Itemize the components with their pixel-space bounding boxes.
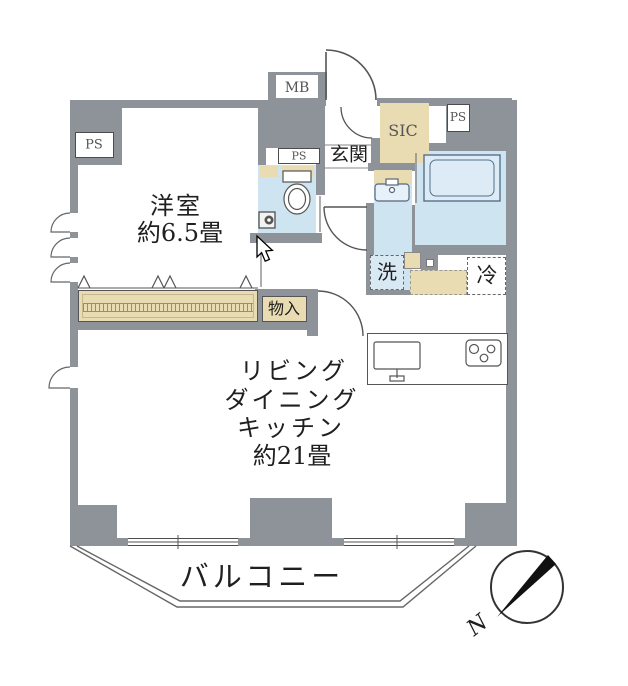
ldk-door-arc [318,291,363,336]
corridor-door [324,207,367,250]
window-notch-4 [70,367,78,388]
corner-cabinet [404,252,421,269]
ps-right-label: PS [450,111,466,123]
pillar-bottom-left [70,505,117,546]
toilet-shelf-right [282,166,314,177]
wall-closet-bottom [70,322,318,330]
wall-sic-left [371,138,380,163]
wall-stub-3 [238,538,250,546]
closet [78,290,258,322]
compass-icon [491,551,563,623]
ldk-label-3: キッチン [237,416,345,440]
ldk-label-1: リビング [240,359,348,383]
western-room-size: 約6.5畳 [137,221,223,245]
fridge-label: 冷 [477,266,498,287]
wall-right [506,100,517,546]
ldk-label-2: ダイニング [225,388,360,412]
window-band-right [344,538,454,546]
wall-top-left [70,100,268,108]
pillar-bottom-center [250,498,332,546]
toilet-shelf-left [260,166,278,177]
entrance-door-opening [326,98,377,106]
bathroom [415,151,506,245]
wall-stub-1 [117,538,128,546]
washer-label: 洗 [377,262,397,282]
wall-bath-bottom [412,245,506,255]
washroom-counter [374,170,412,184]
floor-plan: 洋室 約6.5畳 リビング ダイニング キッチン 約21畳 バルコニー 玄関 S… [0,0,628,686]
entrance-door [326,50,376,100]
pipe-block-vent [426,259,434,267]
window-band-left [128,538,238,546]
ps-toilet-label: PS [292,151,307,162]
window-notch-1 [70,213,78,232]
wall-stub-4 [332,538,344,546]
wall-below-mb [266,105,325,148]
window-notch-3 [70,263,78,282]
entrance-label: 玄関 [330,146,368,165]
window-notch-2 [70,238,78,257]
wall-storage-right-ext [307,330,318,336]
casement-windows [49,213,70,388]
closet-hatch [83,303,253,312]
western-room-label: 洋室 [150,194,202,218]
pillar-bottom-right [465,503,517,546]
balcony-label: バルコニー [180,563,344,592]
ldk-size: 約21畳 [253,444,332,468]
sic-door-arc [341,107,372,138]
wall-stub-2 [454,538,465,546]
ps-left-label: PS [85,139,103,152]
meter-box-label: MB [285,81,310,95]
back-counter [410,270,467,295]
storage-label: 物入 [268,301,300,317]
compass-north-label: N [464,611,493,640]
kitchen-counter [367,333,508,385]
fold-door-marks [78,276,252,288]
wall-toilet-bottom [250,233,322,243]
sic-label: SIC [388,123,418,139]
